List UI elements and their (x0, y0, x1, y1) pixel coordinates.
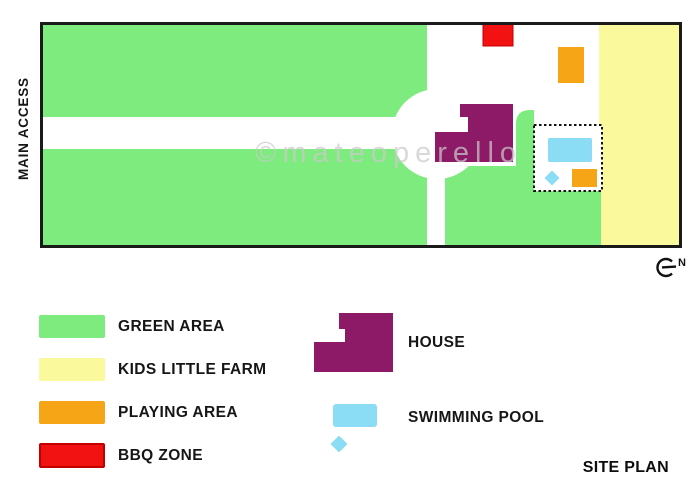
bbq-zone-swatch (39, 443, 105, 468)
bbq-zone-label: BBQ ZONE (118, 447, 203, 465)
house-icon-shape (314, 313, 393, 372)
green-area-top-left (43, 25, 427, 117)
playing-area-pool-plot (572, 169, 597, 187)
playing-area-swatch (39, 401, 105, 424)
north-pointer-icon (662, 267, 676, 268)
main-access-label: MAIN ACCESS (16, 80, 32, 180)
house-legend-icon (314, 313, 394, 373)
site-plan-page: MAIN ACCESS ©mateoperello N GREEN AREA K… (0, 0, 700, 500)
bbq-zone (483, 24, 513, 46)
swimming-pool-swatch (333, 404, 377, 427)
legend-row-kids-farm: KIDS LITTLE FARM (39, 358, 266, 381)
legend-row-playing-area: PLAYING AREA (39, 401, 238, 424)
north-label: N (678, 257, 686, 269)
swimming-pool-label: SWIMMING POOL (408, 409, 544, 427)
playing-area-top (558, 47, 584, 83)
kids-farm-zone (599, 25, 679, 245)
legend-row-green-area: GREEN AREA (39, 315, 225, 338)
kids-farm-label: KIDS LITTLE FARM (118, 361, 266, 379)
playing-area-label: PLAYING AREA (118, 404, 238, 422)
north-indicator: N (650, 252, 696, 282)
swimming-pool (548, 138, 592, 162)
pool-diamond-icon (331, 436, 348, 453)
house-label: HOUSE (408, 334, 465, 352)
green-area-swatch (39, 315, 105, 338)
site-map: ©mateoperello (40, 22, 682, 248)
green-area-label: GREEN AREA (118, 318, 225, 336)
legend-row-bbq-zone: BBQ ZONE (39, 443, 203, 468)
watermark: ©mateoperello (255, 137, 522, 169)
page-title: SITE PLAN (583, 459, 669, 477)
kids-farm-swatch (39, 358, 105, 381)
